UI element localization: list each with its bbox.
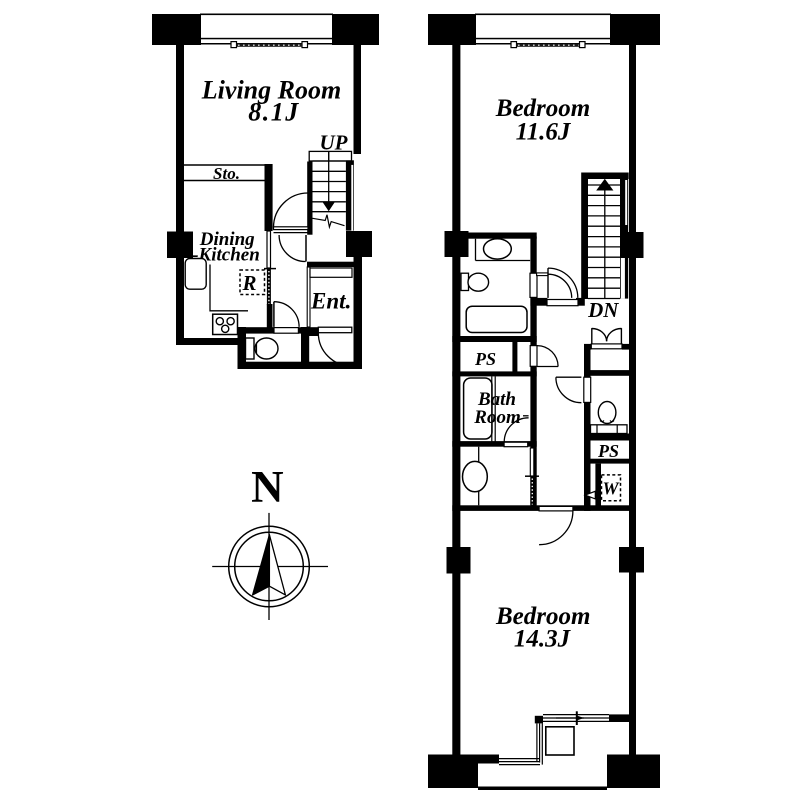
svg-text:8.1J: 8.1J (248, 98, 300, 127)
svg-text:DN: DN (587, 298, 619, 322)
svg-text:Sto.: Sto. (213, 164, 240, 183)
svg-text:Room: Room (473, 407, 520, 428)
svg-text:N: N (251, 462, 284, 512)
svg-text:UP: UP (320, 131, 348, 155)
svg-text:W: W (602, 479, 620, 499)
svg-text:14.3J: 14.3J (514, 626, 572, 653)
svg-text:PS: PS (597, 441, 619, 461)
svg-text:11.6J: 11.6J (516, 119, 572, 146)
svg-text:PS: PS (474, 349, 496, 369)
svg-text:R: R (241, 271, 256, 295)
svg-text:Ent.: Ent. (310, 289, 351, 314)
